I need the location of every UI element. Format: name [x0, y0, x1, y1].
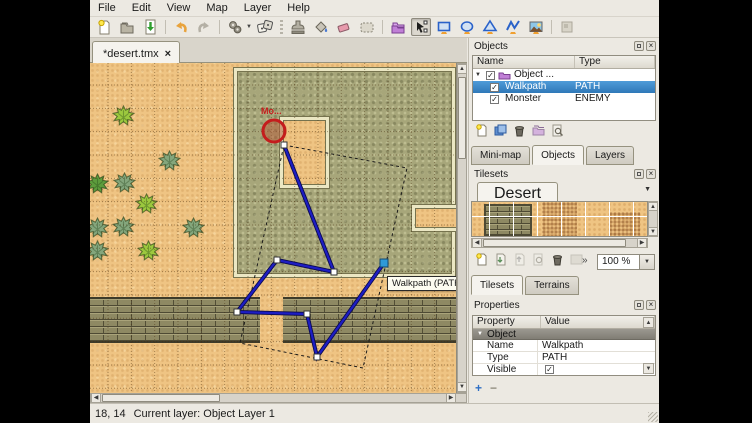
- tab-desert-tmx[interactable]: *desert.tmx ×: [92, 41, 180, 63]
- document-tabbar: *desert.tmx ×: [90, 38, 467, 63]
- object-layer-icon[interactable]: [388, 18, 408, 36]
- rect-select-icon[interactable]: [357, 18, 377, 36]
- objects-tree[interactable]: Name Type ▼ ✓ Object ... ✓ Walkpath PATH…: [472, 55, 656, 121]
- remove-property-icon[interactable]: −: [490, 381, 497, 395]
- insert-rectangle-tool[interactable]: [434, 18, 454, 36]
- properties-table[interactable]: Property Value ▲ ▼ Object Name Walkpath …: [472, 315, 656, 376]
- hscroll-thumb[interactable]: [102, 394, 220, 402]
- document-area: *desert.tmx ×: [90, 38, 467, 403]
- expander-icon[interactable]: ▼: [477, 331, 483, 337]
- move-object-to-layer-icon[interactable]: [531, 124, 545, 137]
- float-panel-icon[interactable]: [634, 300, 644, 310]
- combo-arrow-icon[interactable]: ▼: [640, 254, 655, 270]
- property-row-name[interactable]: Name Walkpath: [473, 340, 655, 352]
- import-tileset-icon[interactable]: [493, 253, 507, 266]
- edit-terrain-icon[interactable]: [569, 253, 583, 266]
- open-file-icon[interactable]: [117, 18, 137, 36]
- add-property-icon[interactable]: +: [475, 381, 482, 395]
- property-row-visible[interactable]: Visible ✓: [473, 364, 655, 376]
- scroll-down-icon[interactable]: ▼: [648, 227, 658, 236]
- remove-tileset-icon[interactable]: [550, 253, 564, 266]
- tileset-hscroll-thumb[interactable]: [483, 239, 626, 247]
- map-canvas[interactable]: Mo... Walkpath (PATH): [90, 63, 457, 393]
- float-panel-icon[interactable]: [634, 41, 644, 51]
- monster-type: ENEMY: [575, 93, 611, 105]
- dock-panels: Objects × Name Type ▼ ✓ Object ... ✓ Wal…: [468, 38, 659, 403]
- object-group-icon: [498, 70, 511, 80]
- canvas-hscrollbar[interactable]: ◀ ▶: [90, 393, 467, 403]
- insert-ellipse-tool[interactable]: [457, 18, 477, 36]
- screenshot-stage: File Edit View Map Layer Help ▼: [0, 0, 752, 423]
- monster-checkbox[interactable]: ✓: [490, 95, 499, 104]
- walkpath-row[interactable]: ✓ Walkpath PATH: [473, 81, 655, 93]
- tileset-tab-row: Tilesets Terrains: [471, 274, 581, 295]
- menubar: File Edit View Map Layer Help: [90, 0, 659, 17]
- misc-disabled-tool[interactable]: [557, 18, 577, 36]
- menu-view[interactable]: View: [159, 1, 199, 15]
- menu-help[interactable]: Help: [279, 1, 318, 15]
- close-panel-icon[interactable]: ×: [646, 169, 656, 179]
- canvas-vscrollbar[interactable]: ▲ ▼: [457, 63, 467, 393]
- scroll-left-icon[interactable]: ◀: [91, 393, 101, 403]
- scroll-down-icon[interactable]: ▼: [643, 363, 654, 374]
- delete-object-icon[interactable]: [512, 124, 526, 137]
- tileset-vscrollbar[interactable]: ▲ ▼: [648, 201, 658, 237]
- property-value-type[interactable]: PATH: [537, 352, 567, 364]
- tileset-menu-arrow[interactable]: ▼: [644, 186, 651, 193]
- walkpath-checkbox[interactable]: ✓: [490, 83, 499, 92]
- close-panel-icon[interactable]: ×: [646, 300, 656, 310]
- tab-minimap[interactable]: Mini-map: [471, 146, 530, 165]
- new-tileset-icon[interactable]: [474, 253, 488, 266]
- tab-objects[interactable]: Objects: [532, 145, 584, 165]
- tab-terrains[interactable]: Terrains: [525, 276, 579, 295]
- expander-icon[interactable]: ▼: [475, 69, 481, 81]
- vscroll-thumb[interactable]: [458, 77, 466, 159]
- col-value: Value: [541, 316, 655, 328]
- properties-panel-title: Properties: [474, 300, 520, 311]
- monster-ellipse[interactable]: [263, 120, 285, 142]
- scroll-up-icon[interactable]: ▲: [457, 64, 467, 74]
- walkpath-polyline[interactable]: [237, 145, 384, 357]
- float-panel-icon[interactable]: [634, 169, 644, 179]
- tiled-app-window: File Edit View Map Layer Help ▼: [90, 0, 659, 423]
- scroll-right-icon[interactable]: ▶: [637, 238, 647, 248]
- objects-panel-title: Objects: [474, 41, 508, 52]
- select-object-tool[interactable]: [411, 18, 431, 36]
- objects-overlay: Mo...: [90, 63, 457, 393]
- close-panel-icon[interactable]: ×: [646, 41, 656, 51]
- walkpath-type: PATH: [575, 81, 600, 93]
- scroll-up-icon[interactable]: ▲: [648, 202, 658, 211]
- save-file-icon[interactable]: [140, 18, 160, 36]
- tileset-toolbar: [474, 253, 583, 266]
- scroll-up-icon[interactable]: ▲: [643, 317, 654, 328]
- object-properties-icon[interactable]: [550, 124, 564, 137]
- dock-tab-row: Mini-map Objects Layers: [471, 142, 636, 165]
- tab-close-icon[interactable]: ×: [165, 48, 171, 60]
- tileset-zoom-combo[interactable]: 100 % ▼: [597, 254, 655, 270]
- tilesets-panel-buttons: ×: [634, 169, 656, 179]
- bucket-fill-icon[interactable]: [311, 18, 331, 36]
- menu-layer[interactable]: Layer: [236, 1, 280, 15]
- properties-panel-buttons: ×: [634, 300, 656, 310]
- monster-row[interactable]: ✓ Monster ENEMY: [473, 93, 655, 105]
- add-object-icon[interactable]: [474, 124, 488, 137]
- object-layer-row[interactable]: ▼ ✓ Object ...: [473, 69, 655, 81]
- resize-grip[interactable]: [648, 412, 658, 422]
- visible-checkbox[interactable]: ✓: [545, 365, 554, 374]
- automap-gears-icon[interactable]: [225, 18, 245, 36]
- walkpath-name: Walkpath: [505, 81, 575, 93]
- insert-polyline-tool[interactable]: [503, 18, 523, 36]
- stamp-brush-icon[interactable]: [288, 18, 308, 36]
- object-tooltip: Walkpath (PATH): [387, 276, 457, 291]
- tileset-view[interactable]: [471, 201, 648, 237]
- monster-name: Monster: [505, 93, 575, 105]
- undo-icon[interactable]: [171, 18, 191, 36]
- insert-polygon-tool[interactable]: [480, 18, 500, 36]
- tileset-properties-icon[interactable]: [531, 253, 545, 266]
- duplicate-object-icon[interactable]: [493, 124, 507, 137]
- objects-toolbar: [474, 124, 564, 137]
- menu-file[interactable]: File: [90, 1, 124, 15]
- tab-title: *desert.tmx: [103, 48, 159, 60]
- menu-edit[interactable]: Edit: [124, 1, 159, 15]
- property-group-object[interactable]: ▼ Object: [473, 329, 655, 340]
- property-buttons: + −: [475, 381, 497, 395]
- cursor-coords: 18, 14: [95, 408, 126, 420]
- main-toolbar: ▼: [90, 17, 659, 38]
- statusbar: 18, 14 Current layer: Object Layer 1 100…: [90, 403, 659, 423]
- col-property: Property: [473, 316, 541, 328]
- menu-map[interactable]: Map: [198, 1, 235, 15]
- property-value-name[interactable]: Walkpath: [537, 340, 583, 352]
- group-label: Object: [487, 329, 516, 340]
- tileset-hscrollbar[interactable]: ◀ ▶: [471, 238, 648, 248]
- current-layer-text: Current layer: Object Layer 1: [134, 408, 275, 420]
- tab-layers[interactable]: Layers: [586, 146, 634, 165]
- new-file-icon[interactable]: [94, 18, 114, 36]
- tileset-zoom-value: 100 %: [597, 254, 640, 270]
- scroll-down-icon[interactable]: ▼: [457, 382, 467, 392]
- objects-panel-buttons: ×: [634, 41, 656, 51]
- layer-name: Object ...: [514, 69, 554, 81]
- layer-checkbox[interactable]: ✓: [486, 71, 495, 80]
- tab-tilesets[interactable]: Tilesets: [471, 275, 523, 295]
- monster-label: Mo...: [261, 106, 282, 116]
- selected-vertex-handle: [380, 259, 388, 267]
- tilesets-panel-title: Tilesets: [474, 169, 508, 180]
- col-name: Name: [473, 56, 575, 68]
- scroll-right-icon[interactable]: ▶: [446, 393, 456, 403]
- col-type: Type: [575, 56, 655, 68]
- scroll-left-icon[interactable]: ◀: [472, 238, 482, 248]
- automap-dropdown-arrow[interactable]: ▼: [246, 24, 252, 30]
- toolbar-overflow-icon[interactable]: »: [582, 255, 588, 266]
- random-dice-icon[interactable]: [255, 18, 275, 36]
- property-row-type[interactable]: Type PATH: [473, 352, 655, 364]
- eraser-icon[interactable]: [334, 18, 354, 36]
- redo-icon[interactable]: [194, 18, 214, 36]
- insert-tile-object-tool[interactable]: [526, 18, 546, 36]
- export-tileset-icon[interactable]: [512, 253, 526, 266]
